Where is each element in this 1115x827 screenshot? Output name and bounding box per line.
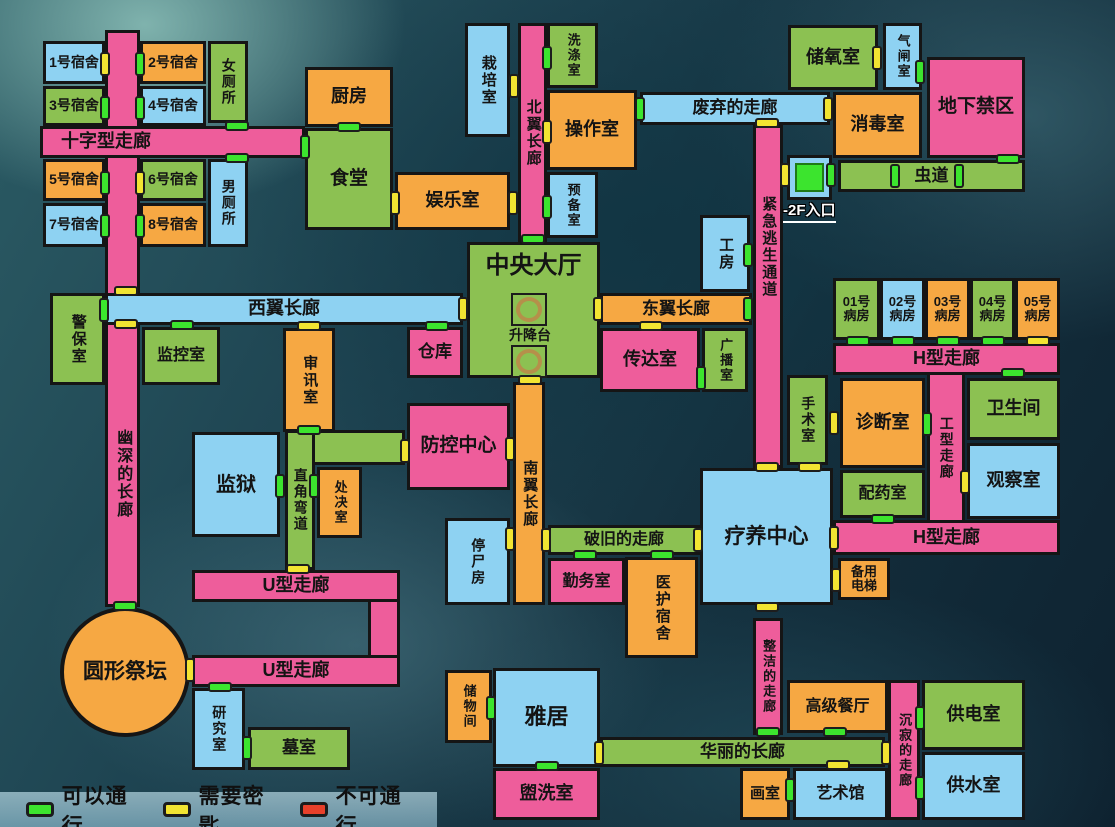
- door-pass-icon: [99, 298, 109, 322]
- dorm-7-label: 7号宿舍: [49, 217, 99, 232]
- diagnosis-room-label: 诊断室: [856, 413, 910, 433]
- operation-room-label: 操作室: [565, 120, 619, 140]
- service-room: 勤务室: [548, 558, 625, 605]
- door-pass-icon: [309, 474, 319, 498]
- interrogation-room-label: 审讯室: [301, 355, 318, 406]
- door-key-icon: [829, 526, 839, 550]
- door-pass-icon: [743, 297, 753, 321]
- door-key-icon: [390, 191, 400, 215]
- door-key-icon: [755, 602, 779, 612]
- corridor-h-type-upper: H型走廊: [833, 343, 1060, 375]
- dorm-5-label: 5号宿舍: [49, 172, 99, 187]
- painting-room: 画室: [740, 768, 790, 820]
- medical-dorm-label: 医护宿舍: [653, 574, 670, 642]
- lift-platform-1: [511, 293, 547, 326]
- door-key-icon: [823, 97, 833, 121]
- broadcast-room: 广播室: [702, 328, 748, 392]
- monitor-room-label: 监控室: [157, 347, 205, 365]
- corridor-north-wing-label: 北翼长廊: [524, 99, 541, 167]
- door-key-icon: [780, 163, 790, 187]
- door-pass-icon: [135, 214, 145, 238]
- ward-01-label: 01号病房: [843, 295, 870, 324]
- tomb-room-label: 墓室: [282, 739, 316, 758]
- diagnosis-room: 诊断室: [840, 378, 925, 468]
- cultivation-room-label: 栽培室: [479, 55, 496, 106]
- door-pass-icon: [242, 736, 252, 760]
- medical-dorm: 医护宿舍: [625, 557, 698, 658]
- power-room-label: 供电室: [947, 705, 1001, 725]
- door-key-icon: [135, 171, 145, 195]
- corridor-emergency-escape-label: 紧急逃生通道: [760, 196, 777, 298]
- door-pass-icon: [826, 163, 836, 187]
- toilet-room-label: 卫生间: [987, 399, 1041, 419]
- corridor-west-wing-label: 西翼长廊: [248, 299, 320, 319]
- door-pass-icon: [225, 153, 249, 163]
- corridor-h-type-upper-label: H型走廊: [913, 349, 980, 369]
- bug-tunnel: 虫道: [838, 160, 1025, 192]
- observation-room: 观察室: [967, 443, 1060, 519]
- corridor-cross: 十字型走廊: [40, 126, 305, 158]
- tomb-room: 墓室: [248, 727, 350, 770]
- dorm-8: 8号宿舍: [140, 203, 206, 247]
- circular-altar: 圆形祭坛: [60, 607, 190, 737]
- door-key-icon: [541, 528, 551, 552]
- dorm-4: 4号宿舍: [140, 86, 206, 126]
- surgery-room: 手术室: [787, 375, 828, 465]
- door-pass-icon: [871, 514, 895, 524]
- backup-elevator: 备用电梯: [838, 558, 890, 600]
- door-pass-icon: [756, 727, 780, 737]
- door-key-icon: [509, 74, 519, 98]
- legend-blocked-icon: [300, 802, 328, 817]
- door-key-icon: [100, 52, 110, 76]
- art-gallery-label: 艺术馆: [816, 785, 864, 803]
- toilet-room: 卫生间: [967, 378, 1060, 440]
- laundry-room: 洗涤室: [547, 23, 598, 88]
- broadcast-room-label: 广播室: [718, 338, 732, 383]
- corridor-u-bottom-label: U型走廊: [263, 661, 330, 681]
- kitchen: 厨房: [305, 67, 393, 127]
- execution-room-label: 处决室: [332, 480, 346, 525]
- mens-toilet-label: 男厕所: [220, 179, 235, 227]
- ward-01: 01号病房: [833, 278, 880, 340]
- door-key-icon: [829, 411, 839, 435]
- door-key-icon: [114, 286, 138, 296]
- water-room-label: 供水室: [947, 776, 1001, 796]
- recuperation-center: 疗养中心: [700, 468, 833, 605]
- door-key-icon: [755, 462, 779, 472]
- elegant-residence-label: 雅居: [524, 705, 568, 729]
- corridor-h-type-lower-label: H型走廊: [913, 528, 980, 548]
- storage-room: 储物间: [445, 670, 492, 743]
- recreation-room-label: 娱乐室: [426, 191, 480, 211]
- corridor-h-type-lower: H型走廊: [833, 520, 1060, 555]
- dorm-7: 7号宿舍: [43, 203, 105, 247]
- corridor-gorgeous-label: 华丽的长廊: [700, 743, 785, 762]
- door-pass-icon: [846, 336, 870, 346]
- circular-altar-label: 圆形祭坛: [83, 660, 167, 683]
- kitchen-label: 厨房: [331, 87, 367, 107]
- canteen-label: 食堂: [330, 169, 368, 190]
- corridor-emergency-escape: 紧急逃生通道: [753, 125, 783, 468]
- laundry-room-label: 洗涤室: [565, 33, 579, 78]
- underground-forbidden-zone-label: 地下禁区: [938, 97, 1014, 118]
- corridor-u-top: U型走廊: [192, 570, 400, 602]
- airlock-room-label: 气闸室: [895, 34, 909, 79]
- dorm-2: 2号宿舍: [140, 41, 206, 84]
- corridor-silent-label: 沉寂的走廊: [897, 713, 911, 788]
- dorm-4-label: 4号宿舍: [148, 98, 198, 113]
- door-key-icon: [1026, 336, 1050, 346]
- pharmacy-room: 配药室: [840, 470, 925, 518]
- security-room: 警保室: [50, 293, 105, 385]
- corridor-abandoned: 废弃的走廊: [640, 92, 830, 125]
- dorm-3: 3号宿舍: [43, 86, 105, 126]
- corridor-shabby: 破旧的走廊: [548, 525, 700, 555]
- monitor-room: 监控室: [142, 327, 220, 385]
- door-key-icon: [286, 564, 310, 574]
- ward-02: 02号病房: [880, 278, 925, 340]
- legend-pass-label: 可以通行: [62, 780, 141, 827]
- legend-key-label: 需要密匙: [199, 780, 278, 827]
- execution-room: 处决室: [317, 467, 362, 538]
- pharmacy-room-label: 配药室: [858, 485, 906, 503]
- door-pass-icon: [337, 122, 361, 132]
- door-key-icon: [798, 462, 822, 472]
- legend-blocked-label: 不可通行: [336, 780, 415, 827]
- corridor-shabby-label: 破旧的走廊: [584, 531, 664, 549]
- door-pass-icon: [823, 727, 847, 737]
- prison-label: 监狱: [216, 474, 256, 496]
- door-key-icon: [831, 568, 841, 592]
- door-pass-icon: [915, 776, 925, 800]
- womens-toilet: 女厕所: [208, 41, 248, 123]
- warehouse-label: 仓库: [418, 343, 452, 362]
- dorm-8-label: 8号宿舍: [148, 217, 198, 232]
- door-pass-icon: [486, 696, 496, 720]
- door-key-icon: [872, 46, 882, 70]
- corridor-right-angle-v-label: 直角弯道: [292, 468, 307, 532]
- washroom-label: 盥洗室: [520, 784, 574, 804]
- corridor-deep-label: 幽深的长廊: [114, 429, 132, 519]
- door-pass-icon: [535, 761, 559, 771]
- corridor-west-wing: 西翼长廊: [105, 293, 463, 325]
- door-key-icon: [185, 658, 195, 682]
- dorm-2-label: 2号宿舍: [148, 55, 198, 70]
- door-pass-icon: [890, 164, 900, 188]
- door-key-icon: [881, 741, 891, 765]
- door-pass-icon: [225, 121, 249, 131]
- door-pass-icon: [300, 135, 310, 159]
- door-pass-icon: [891, 336, 915, 346]
- door-key-icon: [505, 437, 515, 461]
- door-key-icon: [593, 297, 603, 321]
- door-pass-icon: [275, 474, 285, 498]
- door-pass-icon: [100, 214, 110, 238]
- fancy-restaurant: 高级餐厅: [787, 680, 888, 733]
- control-center: 防控中心: [407, 403, 510, 490]
- door-pass-icon: [113, 601, 137, 611]
- womens-toilet-label: 女厕所: [220, 58, 235, 106]
- door-key-icon: [518, 375, 542, 385]
- door-pass-icon: [100, 96, 110, 120]
- corridor-east-wing: 东翼长廊: [600, 293, 752, 325]
- door-pass-icon: [915, 60, 925, 84]
- door-pass-icon: [981, 336, 1005, 346]
- legend: 可以通行 需要密匙 不可通行: [0, 792, 437, 827]
- art-gallery: 艺术馆: [793, 768, 888, 820]
- entrance-2f-label: -2F入口: [783, 199, 836, 223]
- ward-02-label: 02号病房: [889, 295, 916, 324]
- dorm-1-label: 1号宿舍: [49, 55, 99, 70]
- door-pass-icon: [696, 366, 706, 390]
- reception-room: 传达室: [600, 328, 700, 392]
- corridor-south-wing-label: 南翼长廊: [521, 460, 538, 528]
- underground-forbidden-zone: 地下禁区: [927, 57, 1025, 158]
- recreation-room: 娱乐室: [395, 172, 510, 230]
- power-room: 供电室: [922, 680, 1025, 750]
- observation-room-label: 观察室: [987, 471, 1041, 491]
- ward-04-label: 04号病房: [979, 295, 1006, 324]
- mens-toilet: 男厕所: [208, 159, 248, 247]
- storage-room-label: 储物间: [461, 684, 475, 729]
- corridor-u-top-label: U型走廊: [263, 576, 330, 596]
- service-room-label: 勤务室: [562, 573, 610, 591]
- door-key-icon: [594, 741, 604, 765]
- reception-room-label: 传达室: [623, 350, 677, 370]
- disinfection-room-label: 消毒室: [851, 115, 905, 135]
- dorm-1: 1号宿舍: [43, 41, 105, 84]
- corridor-i-type: 工型走廊: [927, 362, 965, 534]
- corridor-right-angle-v: 直角弯道: [285, 430, 315, 570]
- door-pass-icon: [635, 97, 645, 121]
- door-pass-icon: [915, 706, 925, 730]
- lift-label: 升降台: [495, 325, 565, 345]
- lift-platform-2: [511, 345, 547, 378]
- door-pass-icon: [922, 412, 932, 436]
- door-key-icon: [400, 439, 410, 463]
- corridor-south-wing: 南翼长廊: [513, 382, 545, 605]
- door-key-icon: [693, 528, 703, 552]
- door-pass-icon: [650, 550, 674, 560]
- morgue-label: 停尸房: [470, 538, 485, 586]
- corridor-tidy-label: 整洁的走廊: [761, 639, 775, 714]
- door-pass-icon: [135, 52, 145, 76]
- fancy-restaurant-label: 高级餐厅: [805, 698, 869, 716]
- door-pass-icon: [954, 164, 964, 188]
- door-pass-icon: [170, 320, 194, 330]
- corridor-east-wing-label: 东翼长廊: [642, 300, 710, 319]
- workshop-label: 工房: [717, 237, 734, 271]
- ward-04: 04号病房: [970, 278, 1015, 340]
- ward-03-label: 03号病房: [934, 295, 961, 324]
- door-pass-icon: [996, 154, 1020, 164]
- backup-elevator-label: 备用电梯: [851, 565, 877, 594]
- control-center-label: 防控中心: [420, 436, 496, 457]
- dorm-5: 5号宿舍: [43, 159, 105, 201]
- dorm-6-label: 6号宿舍: [148, 172, 198, 187]
- corridor-tidy: 整洁的走廊: [753, 618, 783, 735]
- door-pass-icon: [785, 778, 795, 802]
- door-key-icon: [114, 319, 138, 329]
- door-pass-icon: [100, 171, 110, 195]
- prison: 监狱: [192, 432, 280, 537]
- central-hall-label: 中央大厅: [486, 253, 582, 279]
- door-key-icon: [297, 321, 321, 331]
- door-pass-icon: [936, 336, 960, 346]
- door-pass-icon: [542, 46, 552, 70]
- door-pass-icon: [521, 234, 545, 244]
- painting-room-label: 画室: [750, 786, 780, 803]
- door-pass-icon: [208, 682, 232, 692]
- disinfection-room: 消毒室: [833, 92, 922, 158]
- water-room: 供水室: [922, 752, 1025, 820]
- canteen: 食堂: [305, 128, 393, 230]
- door-key-icon: [542, 120, 552, 144]
- cultivation-room: 栽培室: [465, 23, 510, 137]
- research-room-label: 研究室: [211, 705, 226, 753]
- door-pass-icon: [1001, 368, 1025, 378]
- corridor-i-type-label: 工型走廊: [938, 416, 953, 480]
- prep-room-label: 预备室: [565, 183, 579, 228]
- oxygen-room: 储氧室: [788, 25, 878, 90]
- surgery-room-label: 手术室: [800, 396, 815, 444]
- dorm-6: 6号宿舍: [140, 159, 206, 201]
- door-pass-icon: [425, 321, 449, 331]
- door-key-icon: [960, 470, 970, 494]
- interrogation-room: 审讯室: [283, 328, 335, 432]
- prep-room: 预备室: [547, 172, 598, 238]
- elegant-residence: 雅居: [493, 668, 600, 767]
- entrance-2f-hatch-icon: [795, 163, 824, 192]
- door-pass-icon: [743, 243, 753, 267]
- lift-circle-icon: [516, 349, 542, 374]
- legend-pass-icon: [26, 802, 54, 817]
- operation-room: 操作室: [547, 90, 637, 170]
- door-pass-icon: [135, 96, 145, 120]
- door-pass-icon: [297, 425, 321, 435]
- bug-tunnel-label: 虫道: [915, 167, 949, 186]
- corridor-cross-label: 十字型走廊: [61, 132, 151, 152]
- warehouse: 仓库: [407, 327, 463, 378]
- oxygen-room-label: 储氧室: [806, 48, 860, 68]
- dorm-3-label: 3号宿舍: [49, 98, 99, 113]
- door-key-icon: [826, 760, 850, 770]
- door-pass-icon: [542, 195, 552, 219]
- lift-circle-icon: [516, 297, 542, 322]
- door-key-icon: [508, 191, 518, 215]
- door-key-icon: [505, 527, 515, 551]
- door-pass-icon: [573, 550, 597, 560]
- security-room-label: 警保室: [69, 314, 86, 365]
- legend-key-icon: [163, 802, 191, 817]
- recuperation-center-label: 疗养中心: [725, 525, 809, 548]
- door-key-icon: [755, 118, 779, 128]
- door-key-icon: [458, 297, 468, 321]
- washroom: 盥洗室: [493, 768, 600, 820]
- ward-03: 03号病房: [925, 278, 970, 340]
- corridor-abandoned-label: 废弃的走廊: [693, 99, 778, 118]
- research-room: 研究室: [192, 688, 245, 770]
- door-key-icon: [639, 321, 663, 331]
- facility-map: 幽深的长廊十字型走廊北翼长廊紧急逃生通道整洁的走廊沉寂的走廊工型走廊U型走廊U型…: [0, 0, 1115, 827]
- morgue: 停尸房: [445, 518, 510, 605]
- ward-05: 05号病房: [1015, 278, 1060, 340]
- ward-05-label: 05号病房: [1024, 295, 1051, 324]
